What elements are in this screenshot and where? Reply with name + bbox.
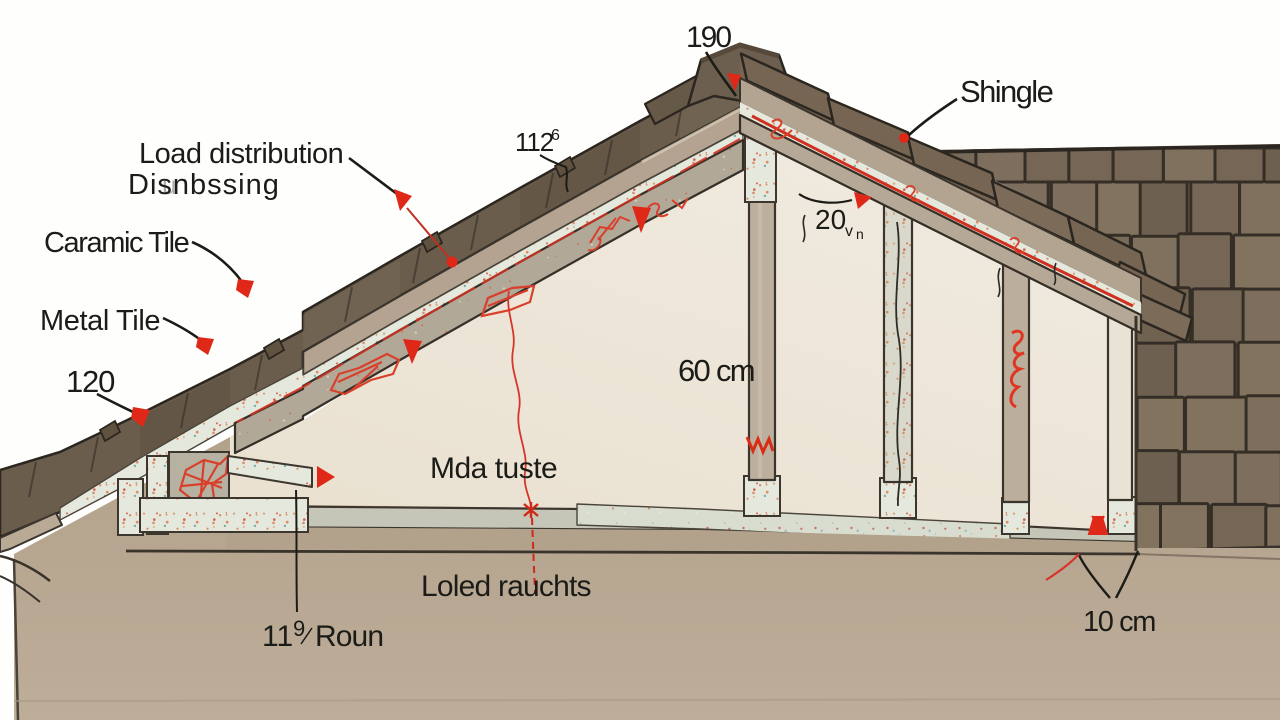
svg-text:120: 120 [66, 364, 115, 399]
svg-text:Load distribution: Load distribution [139, 138, 343, 170]
svg-text:9: 9 [293, 616, 305, 641]
svg-text:6: 6 [551, 127, 560, 144]
svg-text:20: 20 [815, 204, 846, 235]
svg-text:Mda tuste: Mda tuste [430, 452, 557, 485]
svg-text:v: v [845, 223, 853, 240]
svg-text:Caramic Tile: Caramic Tile [44, 227, 189, 259]
svg-text:10 cm: 10 cm [1083, 606, 1155, 638]
svg-text:Loled rauchts: Loled rauchts [421, 570, 591, 603]
svg-text:Shingle: Shingle [960, 74, 1053, 109]
svg-text:112: 112 [515, 127, 554, 157]
svg-text:190: 190 [686, 21, 731, 54]
svg-text:Roun: Roun [315, 620, 383, 653]
svg-text:60 cm: 60 cm [678, 353, 754, 388]
svg-text:n: n [856, 226, 864, 242]
svg-text:Metal Tile: Metal Tile [40, 305, 160, 337]
svg-text:Disnbssing: Disnbssing [128, 169, 280, 201]
svg-text:11: 11 [262, 620, 293, 653]
